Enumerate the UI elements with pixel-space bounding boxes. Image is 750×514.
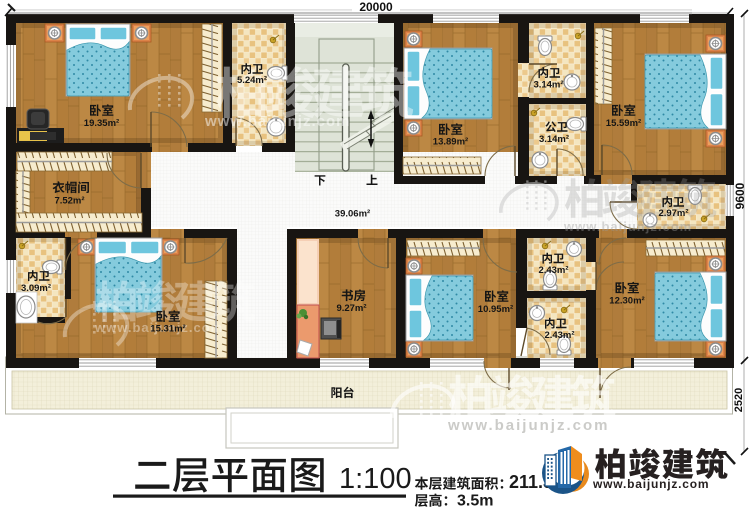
svg-text:2.97m²: 2.97m²	[658, 208, 688, 219]
svg-text:20000: 20000	[359, 0, 393, 14]
svg-text:9600: 9600	[733, 182, 747, 209]
svg-text:3.5m: 3.5m	[457, 493, 493, 510]
svg-text:39.06m²: 39.06m²	[335, 209, 370, 220]
svg-text:www.baijunjz.com: www.baijunjz.com	[447, 417, 609, 434]
svg-text:19.35m²: 19.35m²	[84, 118, 119, 129]
svg-text:9.27m²: 9.27m²	[336, 303, 366, 314]
svg-text:5.24m²: 5.24m²	[237, 75, 267, 86]
svg-text:www.baijunjz.com: www.baijunjz.com	[204, 113, 350, 130]
svg-text:2.43m²: 2.43m²	[544, 330, 574, 341]
svg-text:2520: 2520	[733, 388, 745, 412]
svg-text:15.59m²: 15.59m²	[606, 118, 641, 129]
svg-text:www.baijunjz.com: www.baijunjz.com	[563, 219, 692, 234]
svg-text:3.09m²: 3.09m²	[21, 283, 51, 294]
svg-text:15.31m²: 15.31m²	[150, 324, 185, 335]
svg-text:12.30m²: 12.30m²	[609, 296, 644, 307]
svg-text:2.43m²: 2.43m²	[538, 265, 568, 276]
svg-text:10.95m²: 10.95m²	[478, 304, 513, 315]
svg-text:3.14m²: 3.14m²	[533, 80, 563, 91]
svg-text:13.89m²: 13.89m²	[433, 137, 468, 148]
svg-text:7.52m²: 7.52m²	[54, 196, 84, 207]
svg-text:3.14m²: 3.14m²	[539, 134, 569, 145]
svg-text:1:100: 1:100	[339, 463, 412, 495]
svg-text:www.baijunjz.com: www.baijunjz.com	[592, 477, 709, 491]
